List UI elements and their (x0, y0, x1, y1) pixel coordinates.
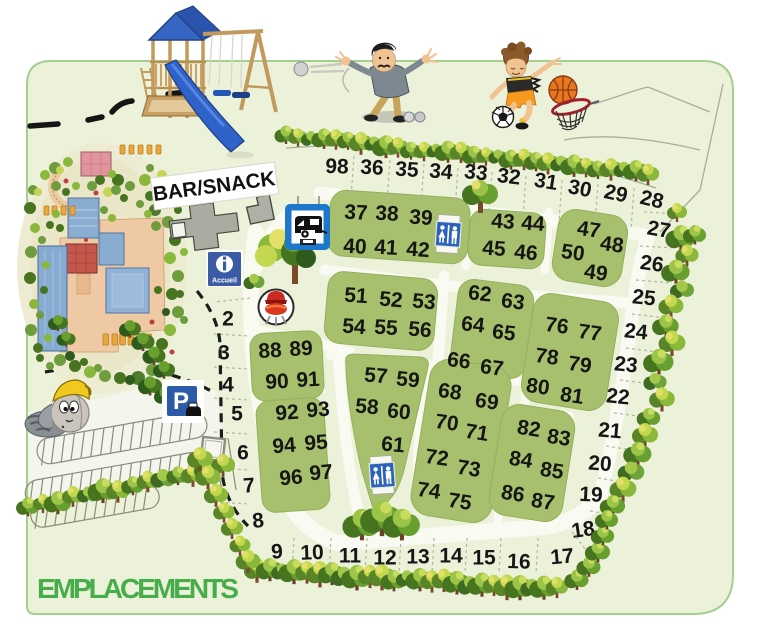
svg-text:7: 7 (242, 474, 255, 498)
svg-text:55: 55 (373, 316, 398, 341)
svg-text:79: 79 (567, 352, 593, 378)
svg-text:94: 94 (272, 434, 297, 459)
svg-text:69: 69 (474, 389, 501, 415)
svg-text:65: 65 (491, 320, 517, 346)
svg-text:34: 34 (428, 159, 454, 184)
svg-text:20: 20 (587, 452, 612, 477)
svg-text:41: 41 (374, 236, 399, 260)
svg-text:25: 25 (631, 285, 657, 310)
svg-text:29: 29 (602, 180, 630, 207)
svg-text:68: 68 (437, 379, 464, 405)
svg-text:32: 32 (496, 164, 522, 190)
svg-text:75: 75 (447, 489, 474, 515)
svg-text:66: 66 (446, 348, 472, 374)
svg-text:67: 67 (479, 355, 505, 381)
svg-text:11: 11 (339, 544, 362, 567)
svg-text:98: 98 (325, 155, 349, 179)
svg-text:96: 96 (278, 465, 303, 490)
svg-text:44: 44 (520, 212, 545, 237)
svg-text:70: 70 (434, 410, 460, 436)
svg-text:80: 80 (525, 374, 551, 400)
svg-text:30: 30 (566, 175, 593, 202)
svg-text:85: 85 (539, 458, 566, 484)
svg-text:82: 82 (516, 416, 543, 442)
svg-text:46: 46 (513, 240, 538, 265)
svg-text:60: 60 (386, 399, 412, 424)
svg-text:16: 16 (507, 550, 531, 574)
svg-text:83: 83 (546, 425, 573, 451)
svg-text:14: 14 (439, 544, 463, 567)
svg-text:88: 88 (258, 339, 283, 363)
svg-text:58: 58 (354, 394, 380, 419)
svg-text:61: 61 (380, 432, 406, 457)
svg-text:86: 86 (500, 481, 527, 507)
svg-text:62: 62 (467, 281, 493, 306)
svg-text:5: 5 (231, 402, 243, 425)
svg-text:89: 89 (289, 337, 314, 361)
svg-text:23: 23 (613, 352, 639, 377)
svg-text:56: 56 (407, 317, 432, 342)
svg-text:77: 77 (577, 320, 603, 346)
svg-text:35: 35 (394, 158, 419, 183)
svg-text:91: 91 (296, 368, 321, 392)
svg-text:EMPLACEMENTS: EMPLACEMENTS (37, 573, 238, 604)
svg-text:2: 2 (222, 307, 234, 330)
svg-text:78: 78 (534, 344, 561, 370)
svg-text:76: 76 (544, 313, 570, 339)
svg-text:49: 49 (583, 260, 609, 286)
svg-text:53: 53 (411, 289, 436, 314)
svg-text:59: 59 (395, 367, 421, 392)
svg-text:92: 92 (275, 401, 300, 426)
svg-text:84: 84 (508, 447, 535, 473)
svg-text:42: 42 (405, 238, 430, 263)
svg-text:71: 71 (464, 420, 491, 446)
svg-text:39: 39 (408, 206, 433, 231)
svg-text:93: 93 (306, 398, 331, 423)
svg-text:4: 4 (222, 373, 234, 396)
svg-text:13: 13 (406, 545, 429, 568)
svg-text:31: 31 (533, 169, 560, 195)
svg-text:95: 95 (304, 431, 329, 456)
svg-text:50: 50 (560, 240, 586, 266)
svg-text:37: 37 (344, 201, 369, 225)
svg-text:38: 38 (375, 202, 400, 226)
svg-text:54: 54 (341, 315, 366, 340)
svg-text:19: 19 (579, 483, 604, 507)
svg-text:48: 48 (599, 232, 626, 258)
svg-text:64: 64 (460, 312, 486, 337)
svg-text:17: 17 (549, 544, 574, 569)
svg-text:22: 22 (605, 384, 631, 409)
svg-text:81: 81 (559, 383, 586, 409)
svg-text:45: 45 (481, 237, 506, 262)
svg-text:52: 52 (378, 287, 403, 312)
svg-text:63: 63 (500, 289, 526, 315)
svg-text:40: 40 (343, 235, 368, 259)
svg-text:72: 72 (424, 445, 450, 471)
svg-text:21: 21 (597, 418, 623, 443)
svg-text:47: 47 (576, 217, 602, 243)
svg-text:24: 24 (623, 319, 649, 344)
svg-text:51: 51 (343, 284, 368, 309)
svg-text:74: 74 (416, 478, 443, 504)
svg-text:6: 6 (237, 441, 249, 464)
svg-text:43: 43 (490, 210, 515, 235)
svg-text:26: 26 (639, 251, 665, 277)
svg-text:15: 15 (472, 546, 496, 569)
svg-text:90: 90 (265, 370, 290, 394)
svg-text:97: 97 (308, 460, 333, 485)
svg-text:87: 87 (530, 489, 557, 515)
svg-text:73: 73 (456, 456, 483, 482)
svg-text:Accueil: Accueil (212, 278, 237, 285)
svg-text:57: 57 (363, 363, 388, 388)
svg-text:36: 36 (360, 156, 385, 180)
